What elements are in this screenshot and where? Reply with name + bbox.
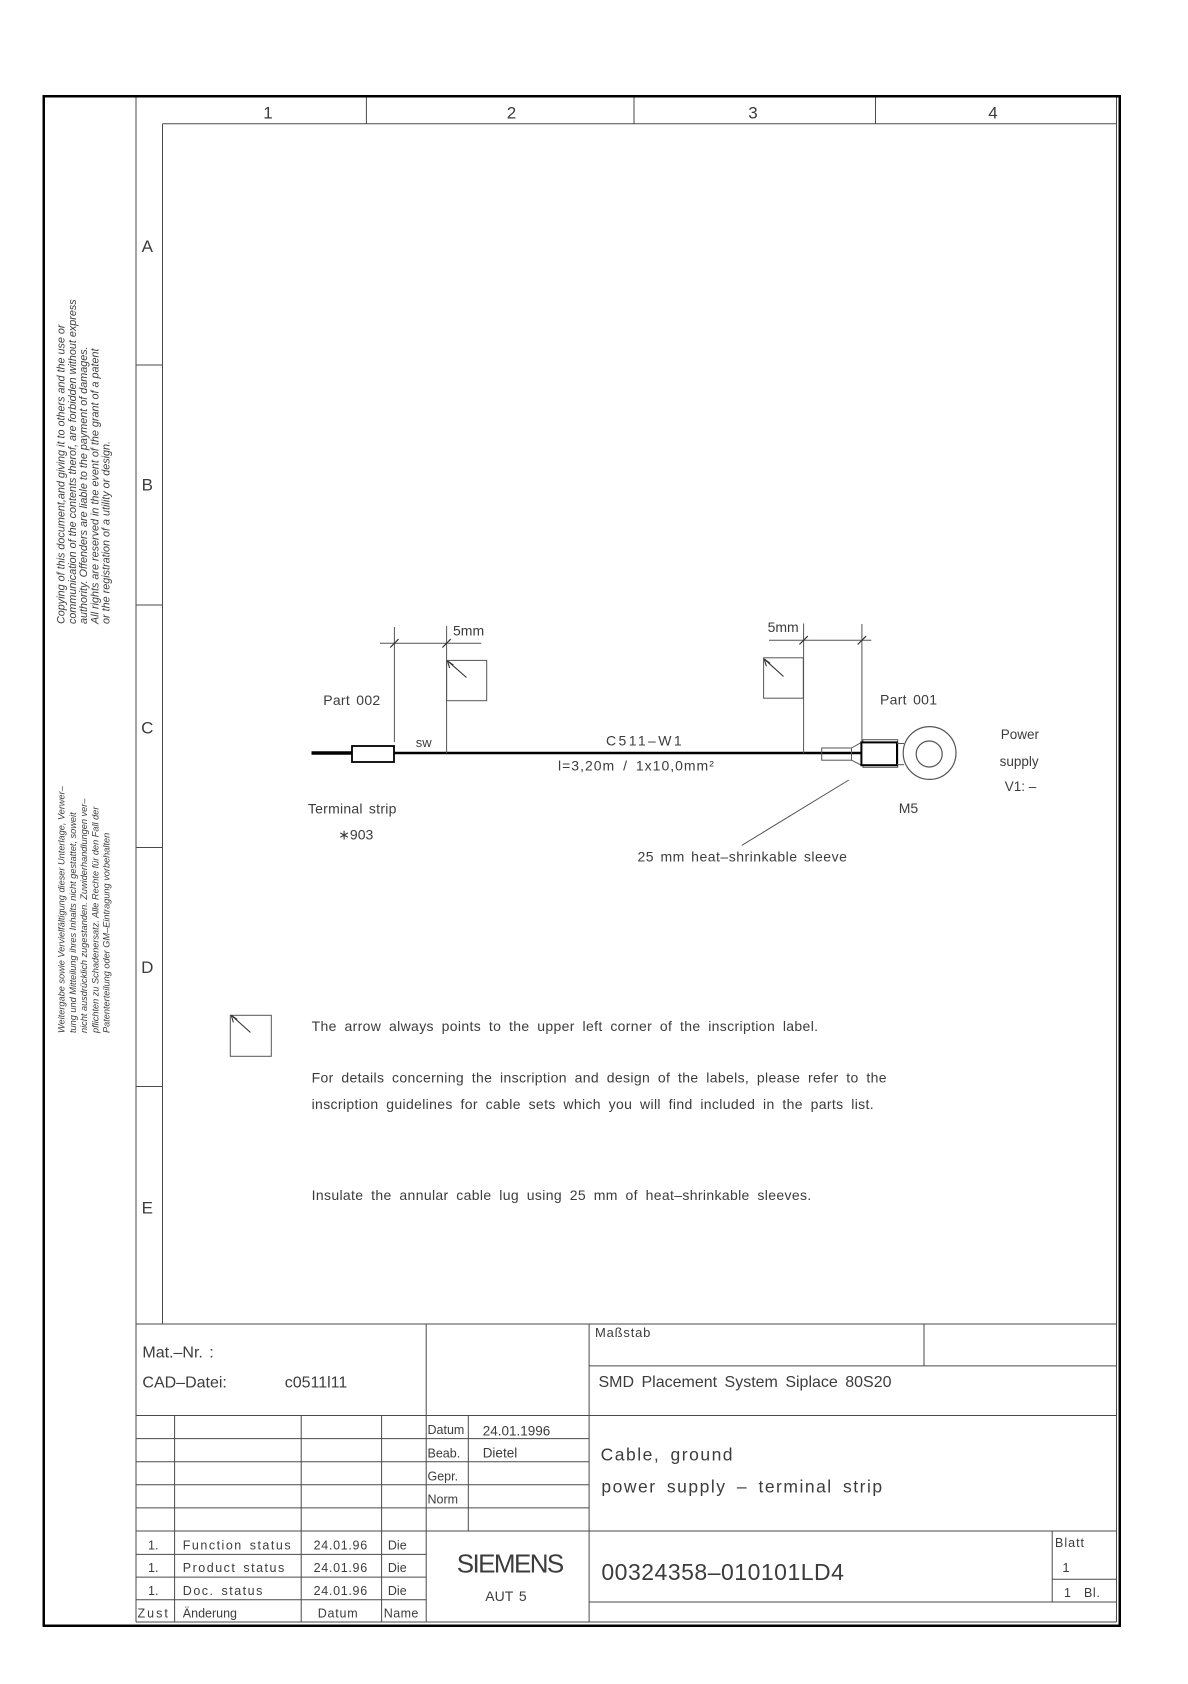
svg-text:Dietel: Dietel (483, 1446, 518, 1461)
svg-text:Die: Die (388, 1561, 407, 1575)
svg-text:Bl.: Bl. (1084, 1586, 1100, 1600)
svg-text:supply: supply (1000, 754, 1039, 769)
svg-text:power supply – terminal strip: power supply – terminal strip (601, 1477, 883, 1497)
svg-text:Beab.: Beab. (428, 1447, 461, 1461)
svg-text:Copying of this document,and g: Copying of this document,and giving it t… (56, 324, 68, 624)
svg-text:E: E (142, 1199, 153, 1218)
svg-text:SIEMENS: SIEMENS (457, 1548, 564, 1578)
svg-text:Part 001: Part 001 (880, 691, 937, 707)
svg-text:1.: 1. (148, 1584, 158, 1598)
svg-text:∗903: ∗903 (338, 826, 373, 842)
svg-text:4: 4 (988, 104, 997, 123)
svg-text:1.: 1. (148, 1538, 158, 1552)
svg-text:24.01.1996: 24.01.1996 (483, 1424, 551, 1439)
svg-text:1.: 1. (148, 1561, 158, 1575)
svg-text:Name: Name (384, 1607, 419, 1621)
svg-text:c0511l11: c0511l11 (285, 1375, 348, 1392)
svg-text:Terminal strip: Terminal strip (308, 801, 397, 817)
svg-text:1: 1 (263, 104, 272, 123)
svg-text:Datum: Datum (318, 1607, 359, 1621)
svg-text:1: 1 (1062, 1560, 1069, 1575)
svg-text:Function status: Function status (183, 1538, 292, 1552)
svg-text:Weitergabe sowie Vervielfältig: Weitergabe sowie Vervielfältigung dieser… (57, 785, 67, 1033)
svg-text:pflichten zu Schadenersatz. Al: pflichten zu Schadenersatz. Alle Rechte … (90, 806, 100, 1034)
svg-text:AUT 5: AUT 5 (485, 1588, 527, 1604)
svg-text:2: 2 (507, 104, 516, 123)
svg-text:Doc. status: Doc. status (183, 1584, 264, 1598)
svg-text:Maßstab: Maßstab (595, 1325, 651, 1340)
svg-text:Power: Power (1001, 727, 1040, 742)
svg-text:Cable, ground: Cable, ground (601, 1445, 734, 1465)
svg-text:communication of the contents: communication of the contents therof, ar… (67, 299, 79, 624)
svg-text:Blatt: Blatt (1055, 1536, 1085, 1550)
svg-text:Gepr.: Gepr. (428, 1470, 459, 1484)
svg-text:5mm: 5mm (768, 619, 799, 635)
svg-text:00324358–010101LD4: 00324358–010101LD4 (601, 1559, 844, 1585)
svg-text:Die: Die (388, 1584, 407, 1598)
svg-text:C: C (141, 719, 153, 738)
svg-text:Zust: Zust (138, 1607, 170, 1621)
svg-text:24.01.96: 24.01.96 (314, 1538, 368, 1552)
svg-text:3: 3 (748, 104, 757, 123)
svg-text:D: D (141, 958, 153, 977)
svg-text:inscription guidelines for cab: inscription guidelines for cable sets wh… (312, 1096, 874, 1112)
svg-text:Insulate the annular cable lug: Insulate the annular cable lug using 25 … (312, 1187, 812, 1203)
svg-text:Norm: Norm (428, 1493, 459, 1507)
svg-text:24.01.96: 24.01.96 (314, 1584, 368, 1598)
svg-text:Part 002: Part 002 (323, 692, 380, 708)
svg-text:25 mm heat–shrinkable sleeve: 25 mm heat–shrinkable sleeve (638, 849, 848, 865)
svg-text:B: B (142, 476, 153, 495)
svg-text:24.01.96: 24.01.96 (314, 1561, 368, 1575)
svg-text:Änderung: Änderung (183, 1607, 237, 1621)
svg-text:All rights are reserved in the: All rights are reserved in the event of … (89, 348, 101, 625)
svg-text:tung und Mitteilung ihres Inha: tung und Mitteilung ihres Inhalts nicht … (68, 812, 78, 1033)
svg-text:Patenterteilung oder GM–Eintra: Patenterteilung oder GM–Eintragung vorbe… (102, 833, 112, 1033)
svg-text:sw: sw (416, 735, 433, 750)
svg-text:V1: –: V1: – (1005, 779, 1037, 794)
svg-text:5mm: 5mm (453, 623, 484, 639)
svg-text:Datum: Datum (428, 1423, 465, 1437)
svg-text:SMD Placement System Siplace 8: SMD Placement System Siplace 80S20 (599, 1374, 892, 1391)
svg-text:CAD–Datei:: CAD–Datei: (142, 1375, 226, 1392)
svg-text:C511–W1: C511–W1 (606, 733, 684, 749)
svg-text:l=3,20m / 1x10,0mm²: l=3,20m / 1x10,0mm² (558, 758, 715, 774)
svg-text:or the registration of a utili: or the registration of a utility or desi… (101, 441, 113, 624)
svg-text:Mat.–Nr. :: Mat.–Nr. : (142, 1344, 213, 1361)
svg-text:Die: Die (388, 1538, 407, 1552)
svg-text:A: A (142, 237, 154, 256)
svg-text:The arrow always points to the: The arrow always points to the upper lef… (312, 1018, 819, 1034)
svg-text:M5: M5 (899, 800, 919, 816)
svg-text:nicht ausdrücklich zugestanden: nicht ausdrücklich zugestanden. Zuwiderh… (79, 798, 89, 1033)
svg-text:1: 1 (1064, 1586, 1071, 1600)
svg-text:authority. Offenders are liabl: authority. Offenders are liable to the p… (78, 346, 90, 624)
svg-text:For details concerning the ins: For details concerning the inscription a… (312, 1069, 887, 1085)
svg-text:Product status: Product status (183, 1561, 286, 1575)
